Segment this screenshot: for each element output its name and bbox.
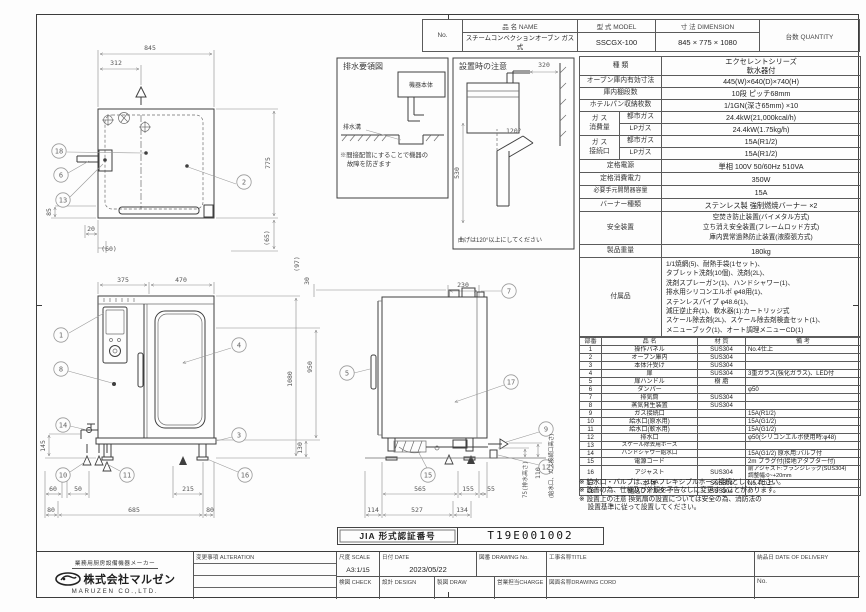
parts-row: 5扉ハンドル樹 脂 xyxy=(580,378,861,386)
spec-burner-label: バーナー種類 xyxy=(580,199,662,212)
svg-text:7: 7 xyxy=(507,288,511,296)
balloon-6: 6 xyxy=(54,161,89,182)
svg-text:16: 16 xyxy=(241,472,249,480)
part-remark xyxy=(746,354,861,362)
part-no: 16 xyxy=(580,466,602,480)
balloon-7: 7 xyxy=(481,284,516,298)
dim-950: 950 xyxy=(306,361,314,373)
balloon-2: 2 xyxy=(188,167,251,189)
part-material xyxy=(698,418,746,426)
drain-funnel-symbol xyxy=(119,113,130,124)
part-no: 13 xyxy=(580,442,602,450)
sheet-no-label: No. xyxy=(757,578,767,585)
parts-row: 8蒸気発生装置SUS304 xyxy=(580,402,861,410)
charge-cell: 営業担当CHARGE xyxy=(494,577,546,599)
drain-guide-box: 排水要領図 機器本体 排水溝 ※間接配管にすることで機器の 故障を防ぎます xyxy=(337,58,448,198)
part-remark: No.4仕上 xyxy=(746,346,861,354)
parts-row: 12排水口φ50(シリコンエルボ使用時:φ48) xyxy=(580,434,861,442)
parts-row: 13スケール除去用ホース xyxy=(580,442,861,450)
footnotes: ※ 給水口・バルブは、15Aフレキシブルホース接続としてください。 ※ 改善の為… xyxy=(579,479,861,513)
gas-entry-arrow xyxy=(179,456,187,465)
ground-hatch xyxy=(342,135,439,141)
spec-gas-connection-group: ガ ス 接続口 xyxy=(580,136,620,160)
sheet-no-cell: No. xyxy=(754,577,860,599)
svg-text:2: 2 xyxy=(242,179,246,187)
door-handle xyxy=(138,353,143,387)
svg-text:5: 5 xyxy=(345,370,349,378)
spec-weight-value: 180kg xyxy=(662,245,861,258)
part-name: アジャスト xyxy=(602,466,698,480)
part-material xyxy=(698,426,746,434)
balloon-10: 10 xyxy=(56,462,85,482)
part-name: 給水口(原水用) xyxy=(602,418,698,426)
part-name: 本体汁受け xyxy=(602,362,698,370)
balloon-11: 11 xyxy=(105,463,134,482)
front-view-drawing: 375 470 xyxy=(39,276,320,518)
spec-cavity-label: オーブン庫内有効寸法 xyxy=(580,76,662,88)
dim-375: 375 xyxy=(117,276,129,284)
part-name: ハンドシャワー給水口 xyxy=(602,450,698,458)
part-remark: 15A(R1/2) xyxy=(746,410,861,418)
dim-530: 530 xyxy=(453,167,461,179)
dim-80-right: 80 xyxy=(206,506,214,514)
part-remark xyxy=(746,378,861,386)
header-model-label: 型 式 MODEL xyxy=(578,20,656,33)
part-no: 10 xyxy=(580,418,602,426)
design-label: 設計 DESIGN xyxy=(382,578,416,586)
drain-outlet xyxy=(490,450,497,458)
top-view-drawing: 845 312 xyxy=(45,45,278,253)
dim-97: (97) xyxy=(293,256,301,272)
alteration-row-line xyxy=(194,563,336,564)
dim-527: 527 xyxy=(411,506,423,514)
part-remark: 15A(G1/2) 原水用:バルブ付 xyxy=(746,450,861,458)
dim-215: 215 xyxy=(182,485,194,493)
parts-row: 1操作パネルSUS304No.4仕上 xyxy=(580,346,861,354)
part-name: 蒸気発生装置 xyxy=(602,402,698,410)
part-name: 電源コード xyxy=(602,458,698,466)
drain-guide-title: 排水要領図 xyxy=(343,61,383,71)
part-no: 9 xyxy=(580,410,602,418)
part-remark xyxy=(746,362,861,370)
part-remark xyxy=(746,402,861,410)
parts-row: 16アジャストSUS304前アジャスト:フランジレッグ(SUS304) 調整幅:… xyxy=(580,466,861,480)
part-material xyxy=(698,410,746,418)
spec-shelf-value: 10段 ピッチ68mm xyxy=(662,88,861,100)
dim-470: 470 xyxy=(175,276,187,284)
dim-312: 312 xyxy=(110,59,122,67)
svg-text:10: 10 xyxy=(59,472,67,480)
check-cell: 検図 CHECK xyxy=(336,577,379,599)
header-name-label: 品 名 NAME xyxy=(463,20,578,33)
parts-row: 11給水口(軟水用)15A(G1/2) xyxy=(580,426,861,434)
part-material: SUS304 xyxy=(698,466,746,480)
balloon-1: 1 xyxy=(54,313,104,342)
alteration-label: 変更事項 ALTERATION xyxy=(196,553,254,561)
part-material: SUS304 xyxy=(698,362,746,370)
svg-text:4: 4 xyxy=(237,342,241,350)
dim-134: 134 xyxy=(456,506,468,514)
svg-text:15: 15 xyxy=(424,472,432,480)
dim-130: 130 xyxy=(296,442,304,454)
design-cell: 設計 DESIGN xyxy=(379,577,434,599)
maker-tagline: 業務用厨房設備機器メーカー xyxy=(72,556,158,569)
parts-row: 2オーブン庫内SUS304 xyxy=(580,354,861,362)
part-name: 扉 xyxy=(602,370,698,378)
spec-breaker-label: 必要手元開閉器容量 xyxy=(580,186,662,199)
part-material: SUS304 xyxy=(698,346,746,354)
water-supply-arrow xyxy=(445,455,453,464)
part-remark: 15A(G1/2) xyxy=(746,418,861,426)
svg-text:1: 1 xyxy=(59,332,63,340)
part-material: SUS304 xyxy=(698,402,746,410)
spec-weight-label: 製品重量 xyxy=(580,245,662,258)
parts-row: 3本体汁受けSUS304 xyxy=(580,362,861,370)
part-no: 15 xyxy=(580,458,602,466)
balloon-9: 9 xyxy=(506,422,553,442)
svg-text:11: 11 xyxy=(123,472,131,480)
spec-lpgas-label: LPガス xyxy=(620,124,662,136)
project-title-label: 工事名称TITLE xyxy=(549,553,587,561)
side-view-drawing: (97) 30 230 7 5 17 xyxy=(293,256,555,518)
part-name: 排水口 xyxy=(602,434,698,442)
drain-trench xyxy=(399,135,423,144)
model-number: SSCGX-100 xyxy=(578,33,656,52)
part-no: 11 xyxy=(580,426,602,434)
dim-565: 565 xyxy=(414,485,426,493)
drawing-no-label: 図番 DRAWING No. xyxy=(479,553,529,561)
svg-text:3: 3 xyxy=(237,432,241,440)
install-caption: 曲げは120°以上にしてください xyxy=(458,236,542,244)
date-value: 2023/05/22 xyxy=(380,565,476,574)
part-no: 4 xyxy=(580,370,602,378)
wall-hatch xyxy=(560,67,566,137)
dim-110: 110 xyxy=(534,467,542,479)
balloon-8: 8 xyxy=(54,362,112,383)
part-name: 扉ハンドル xyxy=(602,378,698,386)
spec-lpgas-label2: LPガス xyxy=(620,148,662,160)
drawing-name-cell: 図面名称DRAWING CORD xyxy=(546,577,754,599)
svg-text:9: 9 xyxy=(544,426,548,434)
part-no: 12 xyxy=(580,434,602,442)
part-material: 樹 脂 xyxy=(698,378,746,386)
dim-114: 114 xyxy=(367,506,379,514)
door-handle-side xyxy=(371,355,376,389)
drain-trench-label: 排水溝 xyxy=(343,123,361,131)
parts-header-name: 品 名 xyxy=(602,337,698,346)
parts-row: 14ハンドシャワー給水口15A(G1/2) 原水用:バルブ付 xyxy=(580,450,861,458)
part-no: 5 xyxy=(580,378,602,386)
spec-safety-label: 安全装置 xyxy=(580,212,662,245)
part-material: SUS304 xyxy=(698,354,746,362)
dim-80-left: 80 xyxy=(47,506,55,514)
part-material xyxy=(698,458,746,466)
vent-slots xyxy=(104,298,134,302)
dim-20: 20 xyxy=(87,225,95,233)
parts-row: 6ダンパーφ50 xyxy=(580,386,861,394)
drain-note-line1: ※間接配管にすることで機器の xyxy=(340,150,428,159)
dim-60: 60 xyxy=(49,485,57,493)
svg-text:17: 17 xyxy=(507,379,515,387)
part-material xyxy=(698,450,746,458)
spec-gas-consumption-group: ガ ス 消費量 xyxy=(580,112,620,136)
dim-1080: 1080 xyxy=(286,371,294,387)
dim-145: 145 xyxy=(39,440,47,452)
gas-height-note: (給水口、ガス接続口高さ) xyxy=(547,434,555,498)
draw-label: 製図 DRAW xyxy=(437,578,467,586)
dim-60p: (60) xyxy=(101,245,117,253)
part-no: 1 xyxy=(580,346,602,354)
part-no: 14 xyxy=(580,450,602,458)
parts-row: 15電源コード2m プラグ付(接地アダプター付) xyxy=(580,458,861,466)
hand-shower-piping xyxy=(81,424,98,439)
drip-tray xyxy=(96,438,216,444)
header-qty-label: 台数 QUANTITY xyxy=(760,20,860,52)
spec-sheet-page: No. 品 名 NAME 型 式 MODEL 寸 法 DIMENSION 台数 … xyxy=(0,0,866,612)
svg-text:13: 13 xyxy=(59,197,67,205)
machine-body-label: 機器本体 xyxy=(409,81,433,89)
title-block: 業務用厨房設備機器メーカー 株式会社マルゼン MARUZEN CO.,LTD. … xyxy=(37,551,860,599)
bend-angle: 120° xyxy=(506,127,522,135)
spec-wattage-value: 350W xyxy=(662,173,861,186)
install-note-title: 設置時の注意 xyxy=(459,61,507,71)
dim-320: 320 xyxy=(538,61,550,69)
header-dim-label: 寸 法 DIMENSION xyxy=(656,20,760,33)
parts-row: 10給水口(原水用)15A(G1/2) xyxy=(580,418,861,426)
svg-text:6: 6 xyxy=(59,172,63,180)
delivery-label: 納品日 DATE OF DELIVERY xyxy=(757,553,828,561)
part-material: SUS304 xyxy=(698,370,746,378)
part-name: スケール除去用ホース xyxy=(602,442,698,450)
spec-consumption-city: 24.4kW(21,000kcal/h) xyxy=(662,112,861,124)
dim-30: 30 xyxy=(303,277,311,285)
svg-text:8: 8 xyxy=(59,366,63,374)
part-no: 3 xyxy=(580,362,602,370)
delivery-cell: 納品日 DATE OF DELIVERY xyxy=(754,552,860,577)
spec-consumption-lp: 24.4kW(1.75kg/h) xyxy=(662,124,861,136)
part-name: 給水口(軟水用) xyxy=(602,426,698,434)
date-label: 日付 DATE xyxy=(382,553,409,561)
part-remark: φ50 xyxy=(746,386,861,394)
parts-header-no: 部番 xyxy=(580,337,602,346)
dim-75-drain-height: 75(排水高さ) xyxy=(521,461,529,498)
check-label: 検図 CHECK xyxy=(339,578,371,586)
note-installation: ※ 設置上の注意 換気扇の設置については安全の為、消防法の 設置基準に従って設置… xyxy=(579,496,861,513)
maker-name: 株式会社マルゼン xyxy=(84,571,176,587)
dim-155: 155 xyxy=(462,485,474,493)
part-remark: 前アジャスト:フランジレッグ(SUS304) 調整幅:0~+20mm xyxy=(746,466,861,480)
oven-door xyxy=(155,311,205,428)
exhaust-direction-arrow xyxy=(136,87,146,97)
drawing-no-cell: 図番 DRAWING No. xyxy=(476,552,546,577)
project-title-cell: 工事名称TITLE xyxy=(546,552,754,577)
scale-value: A3:1/15 xyxy=(337,567,379,574)
spec-table: 種 類 エクセレントシリーズ 軟水器付 オーブン庫内有効寸法 445(W)×64… xyxy=(579,56,861,338)
parts-row: 4扉SUS3043重ガラス(強化ガラス)、LED付 xyxy=(580,370,861,378)
spec-citygas-label: 都市ガス xyxy=(620,112,662,124)
dim-85: 85 xyxy=(45,208,53,216)
spec-connection-city: 15A(R1/2) xyxy=(662,136,861,148)
part-remark: 15A(G1/2) xyxy=(746,426,861,434)
part-no: 8 xyxy=(580,402,602,410)
dim-50: 50 xyxy=(74,485,82,493)
balloon-15: 15 xyxy=(419,453,435,482)
spec-burner-value: ステンレス製 強制燃焼バーナー ×2 xyxy=(662,199,861,212)
part-material xyxy=(698,434,746,442)
top-fitting-symbol xyxy=(102,114,114,126)
spec-accessories-label: 付属品 xyxy=(580,258,662,338)
parts-header-remark: 備 考 xyxy=(746,337,861,346)
drawing-frame: No. 品 名 NAME 型 式 MODEL 寸 法 DIMENSION 台数 … xyxy=(36,14,859,598)
part-remark: 2m プラグ付(接地アダプター付) xyxy=(746,458,861,466)
part-material xyxy=(698,386,746,394)
parts-row: 9ガス接続口15A(R1/2) xyxy=(580,410,861,418)
overall-dimensions: 845 × 775 × 1080 xyxy=(656,33,760,52)
part-remark: 3重ガラス(強化ガラス)、LED付 xyxy=(746,370,861,378)
date-cell: 日付 DATE 2023/05/22 xyxy=(379,552,476,577)
dim-685: 685 xyxy=(128,506,140,514)
spec-citygas-label2: 都市ガス xyxy=(620,136,662,148)
legs-front xyxy=(102,444,208,460)
spec-accessories-value: 1/1焼網(5)、耐熱手袋(1セット)、 タブレット洗剤(10個)、洗剤(2L)… xyxy=(662,258,861,338)
part-name: 操作パネル xyxy=(602,346,698,354)
spec-kind-label: 種 類 xyxy=(580,57,662,76)
scale-label: 尺度 SCALE xyxy=(339,553,370,561)
spec-kind-value: エクセレントシリーズ 軟水器付 xyxy=(662,57,861,76)
svg-text:18: 18 xyxy=(55,148,63,156)
scale-cell: 尺度 SCALE A3:1/15 xyxy=(336,552,379,577)
spec-wattage-label: 定格消費電力 xyxy=(580,173,662,186)
charge-label: 営業担当CHARGE xyxy=(497,578,543,586)
part-name: ガス接続口 xyxy=(602,410,698,418)
part-remark xyxy=(746,394,861,402)
part-remark: φ50(シリコンエルボ使用時:φ48) xyxy=(746,434,861,442)
maruzen-logo-icon xyxy=(55,572,81,586)
parts-row: 7排気筒SUS304 xyxy=(580,394,861,402)
install-note-box: 設置時の注意 320 120° 530 曲げは120°以上にしてください xyxy=(453,58,574,249)
alteration-row-line xyxy=(194,587,336,588)
part-material xyxy=(698,442,746,450)
maker-name-en: MARUZEN CO.,LTD. xyxy=(37,588,193,595)
dim-845: 845 xyxy=(144,45,156,52)
drawing-views: .ln{stroke:#3f3f3f;stroke-width:1;fill:n… xyxy=(37,45,582,535)
door-handle-top xyxy=(77,156,98,162)
balloon-5: 5 xyxy=(340,366,370,380)
balloon-4: 4 xyxy=(183,338,246,363)
maker-cell: 業務用厨房設備機器メーカー 株式会社マルゼン MARUZEN CO.,LTD. xyxy=(37,552,193,599)
dim-775: 775 xyxy=(264,157,272,169)
spec-safety-value: 空焚き防止装置(バイメタル方式) 立ち消え安全装置(フレームロッド方式) 庫内異… xyxy=(662,212,861,245)
spec-cavity-value: 445(W)×640(D)×740(H) xyxy=(662,76,861,88)
part-no: 6 xyxy=(580,386,602,394)
parts-header-material: 材 質 xyxy=(698,337,746,346)
spec-power-label: 定格電源 xyxy=(580,160,662,173)
part-no: 2 xyxy=(580,354,602,362)
part-name: 排気筒 xyxy=(602,394,698,402)
part-name: ダンパー xyxy=(602,386,698,394)
alteration-row-line xyxy=(194,575,336,576)
part-no: 7 xyxy=(580,394,602,402)
spec-shelf-label: 庫内棚段数 xyxy=(580,88,662,100)
drain-note-line2: 故障を防ぎます xyxy=(347,159,391,168)
draw-cell: 製図 DRAW xyxy=(434,577,494,599)
spec-connection-lp: 15A(R1/2) xyxy=(662,148,861,160)
part-material: SUS304 xyxy=(698,394,746,402)
parts-table: 部番 品 名 材 質 備 考 1操作パネルSUS304No.4仕上 2オーブン庫… xyxy=(579,336,861,496)
control-panel xyxy=(103,307,127,363)
spec-pan-label: ホテルパン収納枚数 xyxy=(580,100,662,112)
spec-pan-value: 1/1GN(深さ65mm) ×10 xyxy=(662,100,861,112)
note-spec-change: ※ 改善の為、仕様及び外観を予告なしに変更することがあります。 xyxy=(579,487,861,495)
dim-55: 55 xyxy=(487,485,495,493)
dim-65: (65) xyxy=(263,230,271,246)
drawing-name-label: 図面名称DRAWING CORD xyxy=(549,578,616,586)
spec-power-value: 単相 100V 50/60Hz 510VA xyxy=(662,160,861,173)
underbody-equipment xyxy=(394,440,488,453)
part-name: オーブン庫内 xyxy=(602,354,698,362)
spec-breaker-value: 15A xyxy=(662,186,861,199)
svg-text:14: 14 xyxy=(59,422,67,430)
part-remark xyxy=(746,442,861,450)
alteration-cell: 変更事項 ALTERATION xyxy=(193,552,336,599)
